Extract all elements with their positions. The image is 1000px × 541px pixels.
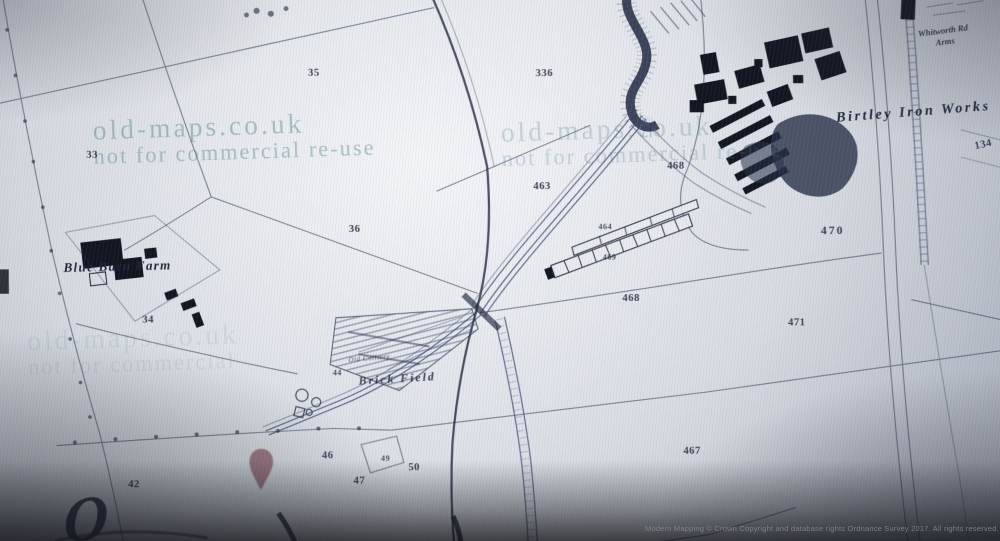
parcel-number: 49 (381, 454, 390, 463)
map-viewport[interactable]: old-maps.co.uk not for commercial re-use… (0, 0, 1000, 541)
location-pin[interactable] (249, 449, 273, 490)
terrace-rows (550, 200, 699, 278)
watermark: old-maps.co.uk not for commercial re-use (27, 320, 242, 379)
parcel-number: 50 (408, 462, 420, 473)
parcel-number: 35 (308, 68, 320, 79)
parcel-number: 46 (322, 450, 334, 461)
parcel-number: 469 (603, 252, 617, 261)
label-blue-barn-farm: Blue Barn Farm (63, 257, 171, 276)
script-strokes (55, 512, 461, 541)
railway-lines (260, 0, 931, 541)
watermark: old-maps.co.uk not for commercial re-use (500, 109, 784, 171)
parcel-number: 468 (667, 161, 685, 172)
parcel-number: 42 (128, 479, 140, 490)
copyright-text: Modern Mapping © Crown Copyright and dat… (645, 524, 999, 533)
old-map-image: old-maps.co.uk not for commercial re-use… (0, 0, 1000, 541)
watermark: old-maps.co.uk not for commercial re-use (92, 107, 376, 169)
parcel-number: 336 (536, 68, 554, 79)
parcel-number: 33 (86, 149, 98, 160)
parcel-number: 34 (142, 315, 154, 326)
parcel-number: 467 (683, 446, 701, 457)
parcel-number: 36 (349, 224, 361, 235)
road-lines (431, 0, 501, 541)
parcel-number: 44 (333, 368, 342, 377)
parcel-number: 468 (622, 293, 640, 304)
parcel-number: 470 (821, 225, 845, 237)
parcel-number: 464 (598, 222, 612, 231)
parcel-number: 47 (353, 475, 365, 486)
parcel-number: 463 (533, 181, 551, 192)
parcel-number: 471 (788, 317, 806, 328)
label-script-letter: O (63, 480, 108, 541)
